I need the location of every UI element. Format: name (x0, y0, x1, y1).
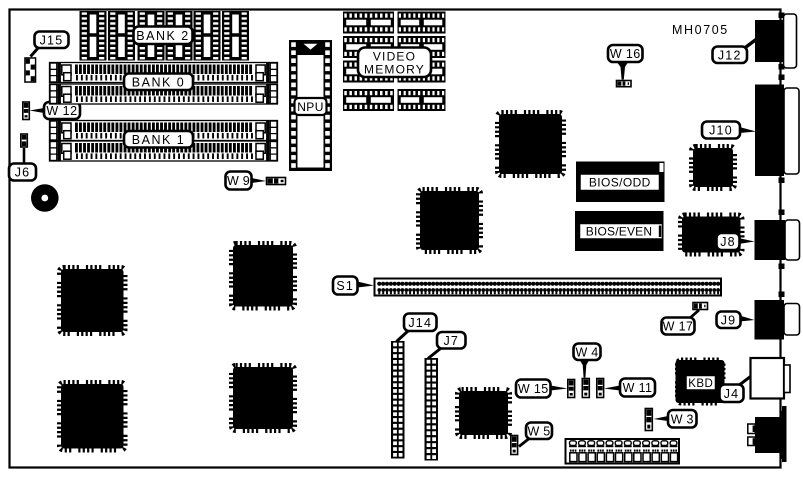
svg-text:J9: J9 (721, 313, 737, 327)
svg-text:J8: J8 (720, 235, 736, 249)
svg-text:BIOS/ODD: BIOS/ODD (589, 176, 651, 190)
svg-text:W 9: W 9 (227, 174, 250, 188)
svg-text:J10: J10 (709, 124, 733, 138)
svg-text:W 15: W 15 (518, 382, 549, 396)
svg-text:MEMORY: MEMORY (364, 63, 425, 77)
svg-text:S1: S1 (336, 279, 354, 293)
svg-text:BANK 2: BANK 2 (136, 29, 189, 43)
svg-text:BANK 0: BANK 0 (132, 75, 185, 89)
svg-text:W 16: W 16 (610, 47, 641, 61)
svg-text:MH0705: MH0705 (672, 23, 729, 37)
svg-text:KBD: KBD (688, 378, 713, 390)
svg-text:W 12: W 12 (46, 104, 77, 118)
svg-text:W 17: W 17 (663, 320, 694, 334)
svg-text:W 3: W 3 (671, 412, 694, 426)
svg-text:J15: J15 (40, 33, 64, 47)
svg-text:J7: J7 (443, 334, 459, 348)
svg-text:BANK 1: BANK 1 (132, 133, 185, 147)
svg-text:J6: J6 (15, 166, 31, 180)
svg-text:VIDEO: VIDEO (373, 50, 416, 64)
svg-text:W 11: W 11 (623, 381, 653, 395)
svg-text:W 5: W 5 (527, 424, 550, 438)
svg-text:BIOS/EVEN: BIOS/EVEN (586, 225, 653, 239)
svg-text:J12: J12 (718, 48, 742, 62)
svg-text:J4: J4 (724, 387, 740, 401)
svg-text:J14: J14 (408, 316, 432, 330)
svg-text:W 4: W 4 (575, 345, 598, 359)
svg-text:NPU: NPU (297, 100, 324, 114)
